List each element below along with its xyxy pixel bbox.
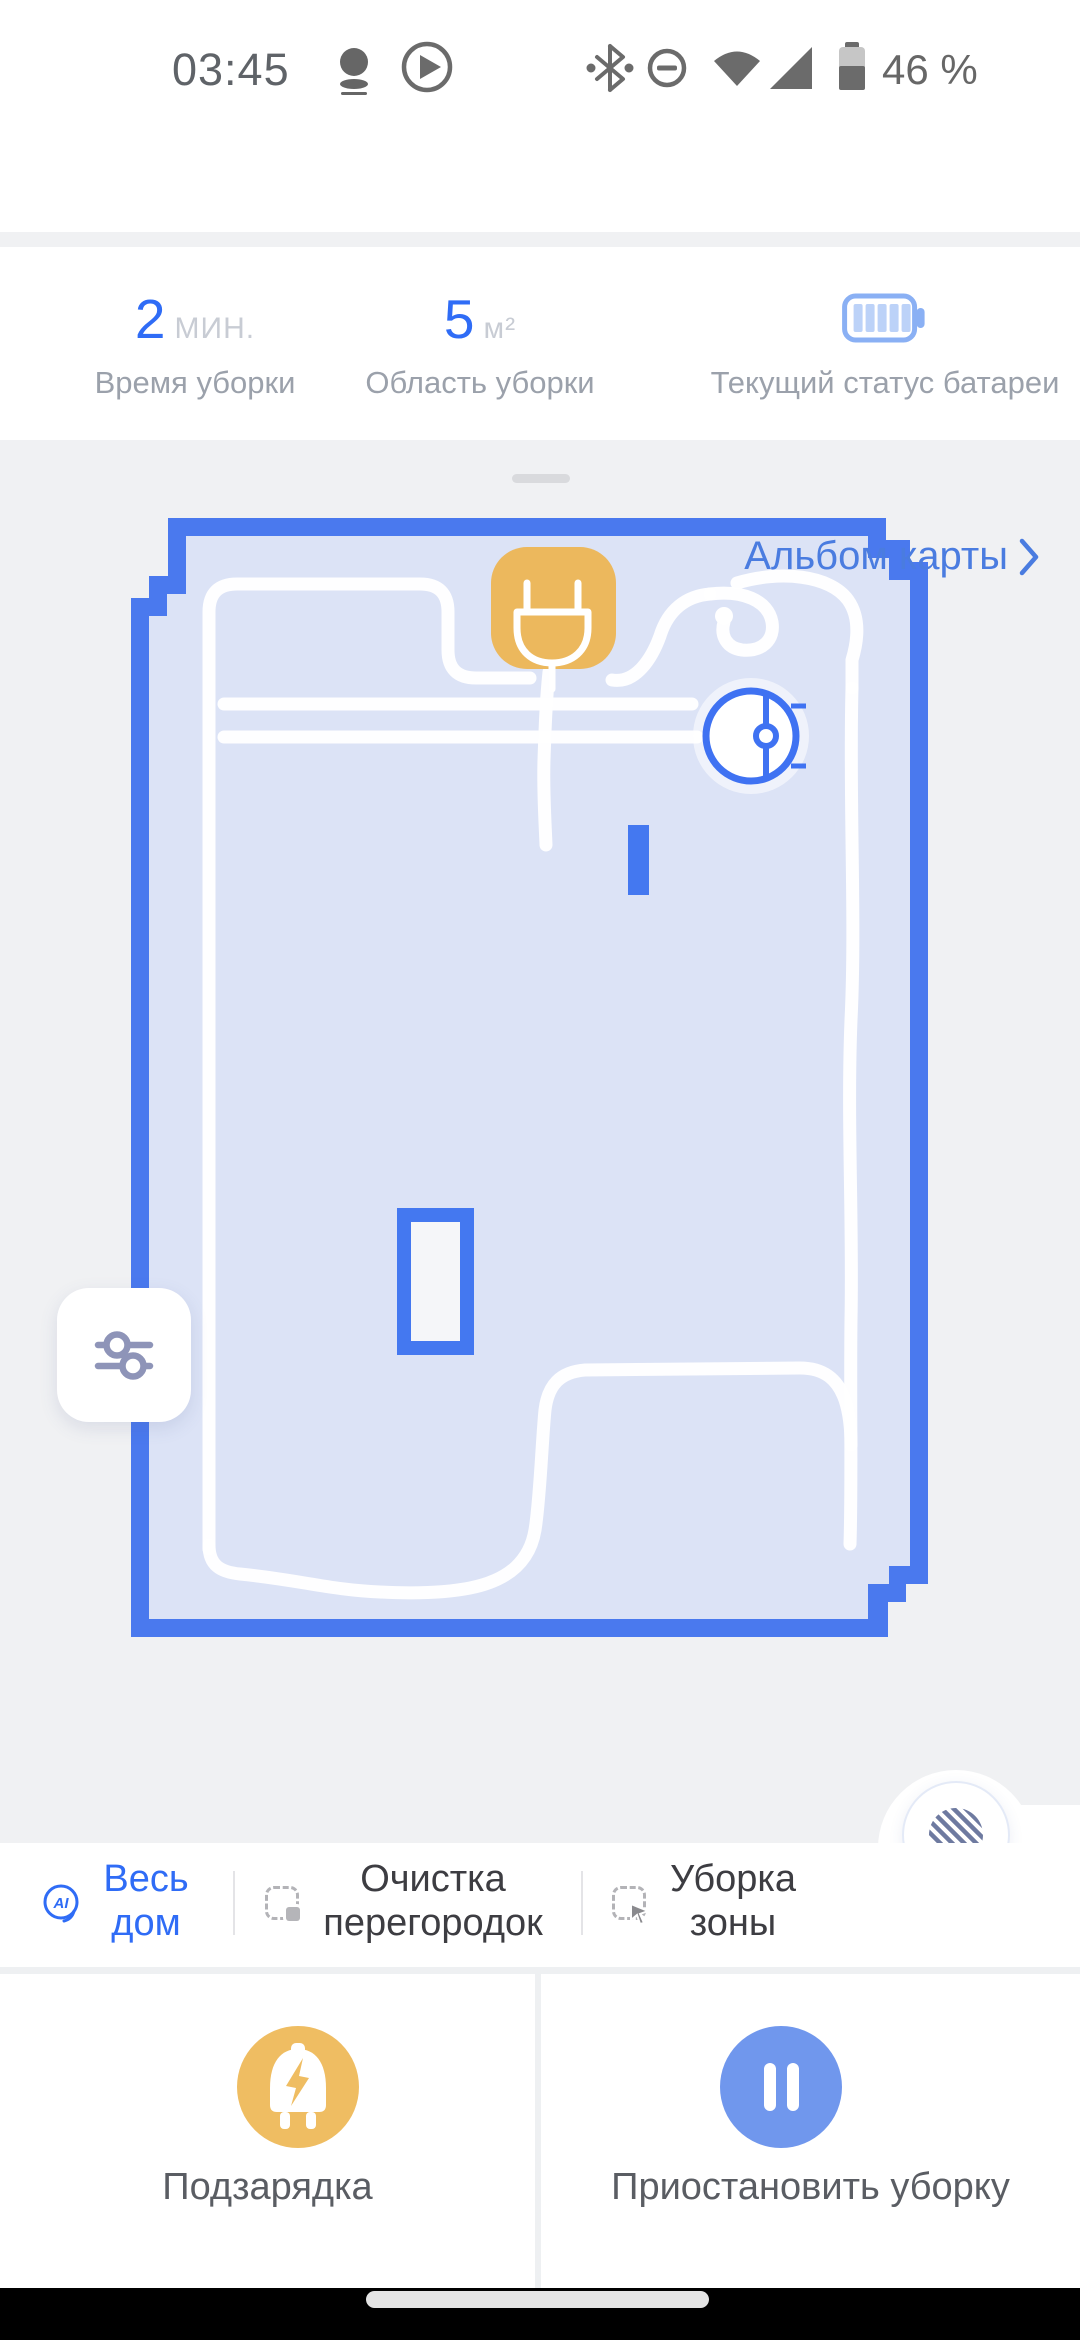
- tab-partition-line1: Очистка: [323, 1857, 543, 1901]
- charging-plug-icon: [237, 2026, 359, 2148]
- cursor-icon: [629, 1903, 651, 1925]
- recharge-card: Подзарядка: [0, 1974, 535, 2288]
- path-end-dot: [715, 607, 733, 625]
- mode-tabs-sheet: AI Весь дом Очистка перегородок Уборка з…: [0, 1843, 1080, 1967]
- wifi-icon: [714, 52, 760, 87]
- virtual-wall[interactable]: [628, 825, 649, 895]
- cleaning-map[interactable]: [0, 440, 1080, 1843]
- clean-time-value: 2: [135, 287, 166, 351]
- zone-select-icon: [612, 1886, 646, 1920]
- stat-clean-area: 5 м² Область уборки: [365, 287, 594, 401]
- bluetooth-icon: [589, 46, 632, 90]
- partition-icon: [265, 1886, 299, 1920]
- partition-icon-square: [286, 1907, 300, 1921]
- map-section: Альбом карты: [0, 440, 1080, 1843]
- gesture-bar: [0, 2288, 1080, 2340]
- no-go-zone[interactable]: [397, 1208, 474, 1355]
- play-circle-icon: [404, 44, 450, 90]
- map-album-link[interactable]: Альбом карты: [744, 534, 1040, 579]
- map-album-label: Альбом карты: [744, 534, 1008, 579]
- tab-partition-cleaning[interactable]: Очистка перегородок: [323, 1857, 543, 1945]
- tab-whole-house-line1: Весь: [103, 1857, 188, 1901]
- tab-divider: [581, 1871, 583, 1935]
- clean-area-unit: м²: [483, 312, 516, 346]
- tab-zone-cleaning[interactable]: Уборка зоны: [670, 1857, 796, 1945]
- ai-icon: AI: [41, 1883, 81, 1923]
- do-not-disturb-icon: [650, 51, 684, 85]
- map-filter-icon: [88, 1319, 160, 1391]
- stats-row: 2 МИН. Время уборки 5 м² Область уборки: [0, 247, 1080, 440]
- battery-status-label: Текущий статус батареи: [711, 365, 1060, 401]
- tab-zone-line1: Уборка: [670, 1857, 796, 1901]
- battery-level-icon: [842, 292, 928, 344]
- action-bar: Подзарядка Приостановить уборку: [0, 1974, 1080, 2288]
- svg-text:AI: AI: [53, 1895, 70, 1912]
- clean-area-label: Область уборки: [365, 365, 594, 401]
- tab-whole-house[interactable]: Весь дом: [103, 1857, 188, 1945]
- stat-clean-time: 2 МИН. Время уборки: [95, 287, 296, 401]
- cards-divider: [0, 1967, 1080, 1974]
- pause-label: Приостановить уборку: [541, 2166, 1080, 2209]
- cell-signal-icon: [770, 47, 812, 89]
- pause-icon: [720, 2026, 842, 2148]
- recharge-label: Подзарядка: [0, 2166, 535, 2209]
- clean-area-value: 5: [444, 287, 475, 351]
- tab-whole-house-line2: дом: [103, 1901, 188, 1945]
- gesture-pill[interactable]: [366, 2291, 709, 2308]
- chevron-right-icon: [1018, 537, 1040, 577]
- header: Уборка всего дома: [0, 115, 1080, 232]
- clean-time-unit: МИН.: [175, 312, 256, 346]
- robot-notification-icon: [340, 48, 368, 95]
- tab-zone-line2: зоны: [670, 1901, 796, 1945]
- map-filter-button[interactable]: [57, 1288, 191, 1422]
- pause-button[interactable]: [720, 2026, 842, 2148]
- app-screen: 03:45: [0, 0, 1080, 2340]
- robot-vacuum-icon[interactable]: [693, 678, 809, 794]
- recharge-button[interactable]: [237, 2026, 359, 2148]
- stat-battery-status: Текущий статус батареи: [711, 287, 1060, 401]
- divider-band: [0, 232, 1080, 247]
- clean-time-label: Время уборки: [95, 365, 296, 401]
- battery-icon: [839, 42, 865, 90]
- battery-percent: 46 %: [882, 46, 978, 94]
- status-bar: 03:45: [0, 0, 1080, 115]
- tab-divider: [233, 1871, 235, 1935]
- pause-card: Приостановить уборку: [541, 1974, 1080, 2288]
- tab-partition-line2: перегородок: [323, 1901, 543, 1945]
